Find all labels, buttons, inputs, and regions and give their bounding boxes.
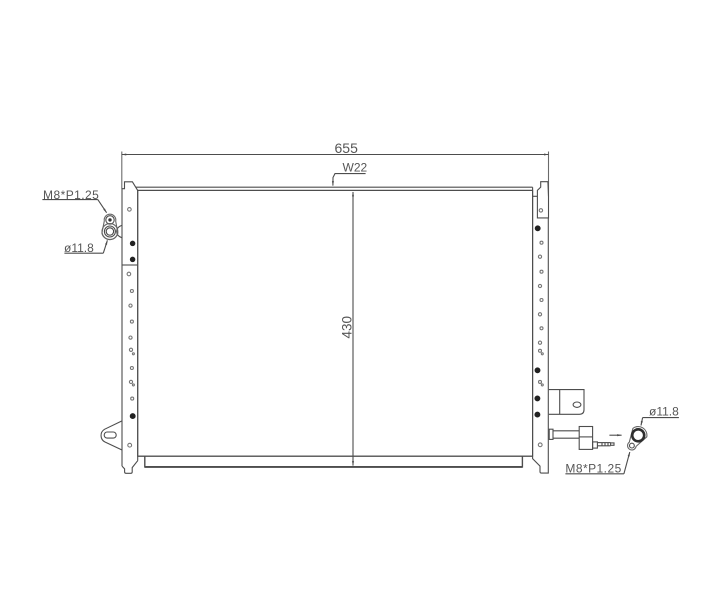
svg-text:430: 430	[340, 316, 355, 339]
svg-text:W22: W22	[343, 160, 368, 174]
svg-text:ø11.8: ø11.8	[649, 405, 679, 419]
svg-text:655: 655	[335, 140, 359, 156]
